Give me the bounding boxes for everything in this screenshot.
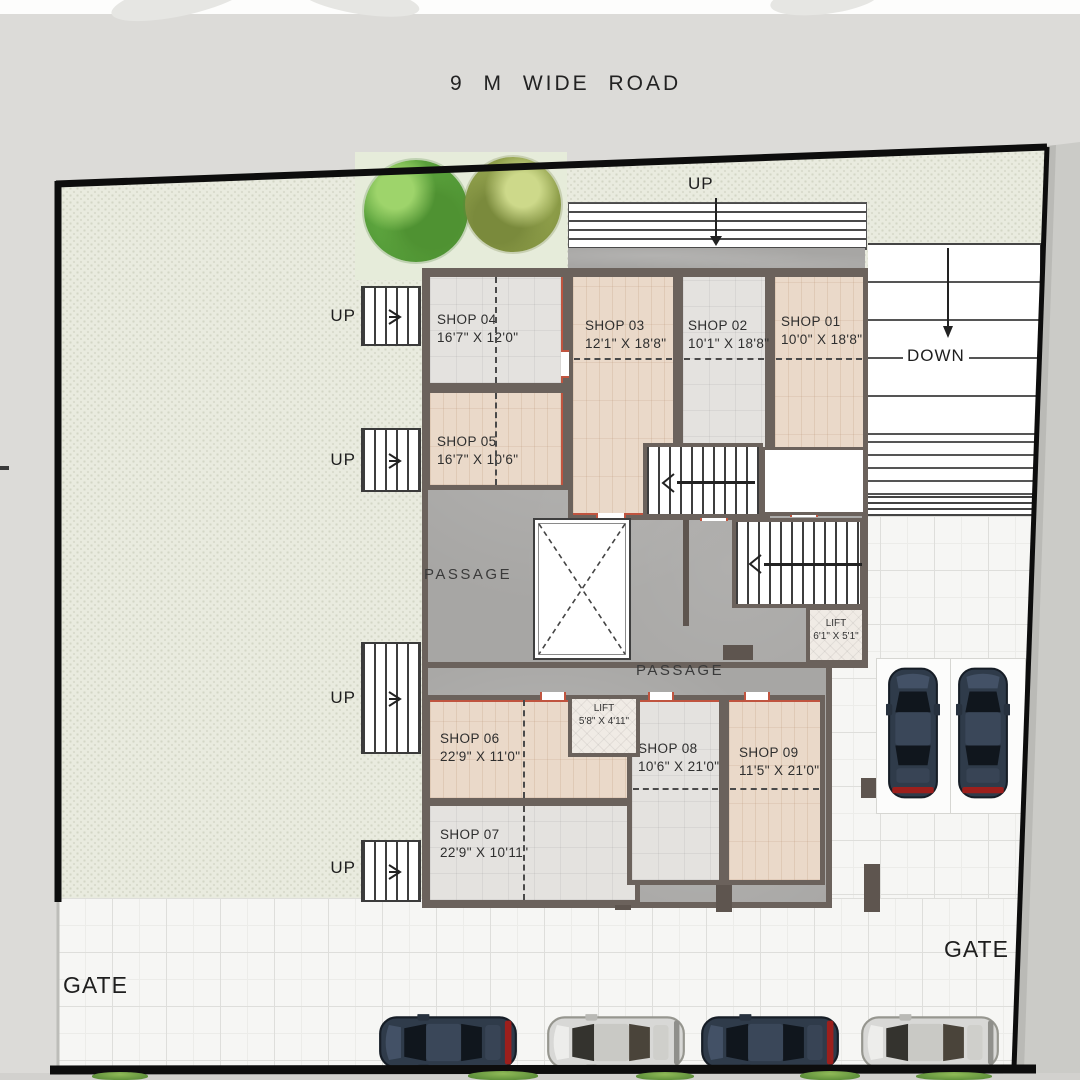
ramp-edge-line: [1040, 245, 1042, 522]
dashed-line: [495, 277, 497, 383]
shop-name: SHOP 03: [585, 317, 667, 335]
shop-name: SHOP 01: [781, 313, 863, 331]
staircase-upper: [643, 443, 763, 518]
dashed-line: [574, 358, 672, 360]
ramp-treads-mid: [868, 435, 1045, 495]
tree-icon: [465, 157, 561, 252]
up-arrow-icon: [387, 452, 403, 470]
up-label: UP: [322, 306, 356, 326]
lift-name: LIFT: [578, 703, 630, 716]
stair-arrow-icon: [748, 554, 762, 574]
shrub-icon: [468, 1071, 538, 1080]
shop-dims: 22'9" X 10'11": [440, 844, 528, 862]
shop-name: SHOP 06: [440, 730, 521, 748]
up-stair-2: [361, 428, 421, 492]
road-label: 9 M WIDE ROAD: [450, 72, 681, 96]
dashed-line: [730, 788, 819, 790]
shop-dims: 10'6" X 21'0": [638, 758, 720, 776]
tree-icon: [364, 160, 468, 262]
shrub-icon: [92, 1072, 148, 1080]
entrance-up-label: UP: [688, 174, 714, 194]
up-arrow-icon: [387, 308, 403, 326]
column: [723, 645, 753, 660]
column: [864, 864, 880, 912]
room-shop-07: SHOP 07 22'9" X 10'11": [425, 801, 640, 905]
dashed-line: [523, 700, 525, 798]
room-shop-09: SHOP 09 11'5" X 21'0": [724, 695, 825, 885]
entrance-landing: [568, 248, 865, 270]
down-arrow-icon: [706, 198, 726, 246]
shop-dims: 22'9" X 11'0": [440, 748, 521, 766]
wall-stub: [683, 520, 689, 626]
car: [860, 1014, 1000, 1071]
car: [956, 666, 1010, 800]
dashed-line: [684, 358, 764, 360]
shop-name: SHOP 05: [437, 433, 519, 451]
dashed-line: [776, 358, 862, 360]
shop-dims: 16'7" X 12'0": [437, 329, 519, 347]
cross-lines-icon: [535, 520, 629, 658]
up-label: UP: [322, 858, 356, 878]
shop-name: SHOP 04: [437, 311, 519, 329]
shop-door: [561, 350, 569, 378]
shop-name: SHOP 02: [688, 317, 770, 335]
car: [700, 1014, 840, 1071]
up-stair-1: [361, 286, 421, 346]
column: [861, 778, 877, 798]
up-arrow-icon: [387, 690, 403, 708]
shop-door: [744, 692, 770, 700]
shop-door: [540, 692, 566, 700]
car: [378, 1014, 518, 1071]
shop-dims: 11'5" X 21'0": [739, 762, 820, 780]
gate-label-right: GATE: [944, 936, 1009, 963]
lift-dims: 5'8" X 4'11": [578, 716, 630, 729]
lift-name: LIFT: [810, 618, 862, 631]
room-lift-2: LIFT 5'8" X 4'11": [568, 695, 640, 757]
parking-divider: [950, 659, 951, 813]
stair-rail: [677, 481, 755, 484]
up-arrow-icon: [387, 863, 403, 881]
ramp-down-label: DOWN: [903, 346, 969, 366]
passage-label: PASSAGE: [636, 662, 724, 679]
edge-mark: [0, 466, 9, 470]
lift-dims: 6'1" X 5'1": [810, 631, 862, 644]
shop-dims: 12'1" X 18'8": [585, 335, 667, 353]
staircase-lower: [732, 518, 864, 608]
dashed-line: [495, 393, 497, 485]
stair-rail: [764, 563, 862, 566]
room-shop-08: SHOP 08 10'6" X 21'0": [627, 695, 724, 885]
up-label: UP: [322, 450, 356, 470]
shop-dims: 10'1" X 18'8": [688, 335, 770, 353]
dashed-line: [523, 806, 525, 900]
shrub-icon: [916, 1072, 992, 1080]
leaf-shape: [299, 0, 422, 23]
room-lift-1: LIFT 6'1" X 5'1": [806, 606, 866, 664]
shop-dims: 16'7" X 10'6": [437, 451, 519, 469]
down-arrow-icon: [938, 248, 958, 338]
shop-name: SHOP 07: [440, 826, 528, 844]
top-decor-band: [0, 0, 1080, 14]
up-stair-4: [361, 840, 421, 902]
duct-cutout: [533, 518, 631, 660]
car: [886, 666, 940, 800]
car: [546, 1014, 686, 1071]
lobby: [762, 447, 866, 515]
shop-name: SHOP 09: [739, 744, 820, 762]
shrub-icon: [636, 1072, 694, 1080]
up-label: UP: [322, 688, 356, 708]
gate-label-left: GATE: [63, 972, 128, 999]
passage-label: PASSAGE: [424, 566, 512, 583]
dashed-line: [633, 788, 718, 790]
shop-name: SHOP 08: [638, 740, 720, 758]
stair-arrow-icon: [661, 473, 675, 493]
up-stair-3: [361, 642, 421, 754]
shop-door: [648, 692, 674, 700]
shrub-icon: [800, 1071, 860, 1080]
leaf-shape: [108, 0, 252, 30]
shop-dims: 10'0" X 18'8": [781, 331, 863, 349]
leaf-shape: [769, 0, 882, 21]
